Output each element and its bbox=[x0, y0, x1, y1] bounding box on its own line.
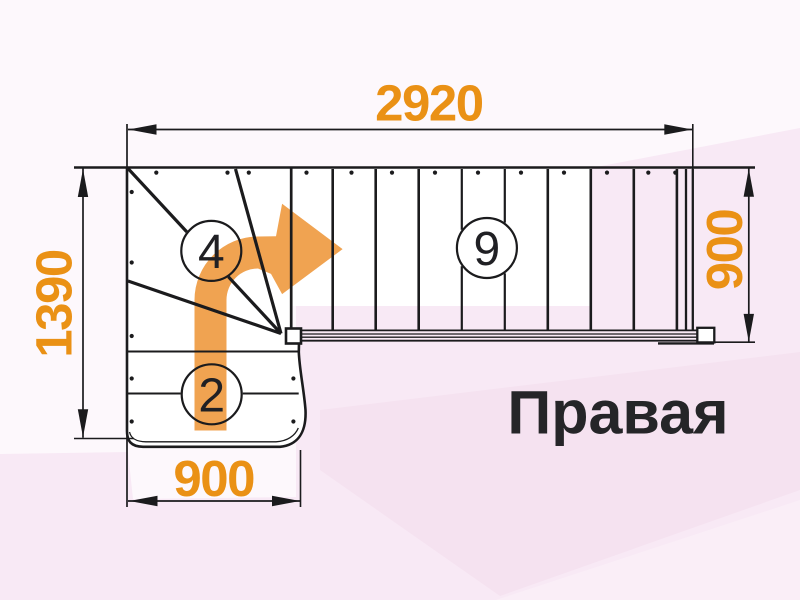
svg-text:900: 900 bbox=[173, 450, 254, 507]
svg-text:2920: 2920 bbox=[375, 75, 483, 132]
svg-text:900: 900 bbox=[696, 210, 753, 291]
svg-text:4: 4 bbox=[198, 226, 225, 279]
svg-text:2: 2 bbox=[198, 369, 225, 422]
svg-text:9: 9 bbox=[474, 223, 501, 276]
svg-text:1390: 1390 bbox=[26, 250, 83, 358]
svg-text:Правая: Правая bbox=[507, 379, 728, 447]
